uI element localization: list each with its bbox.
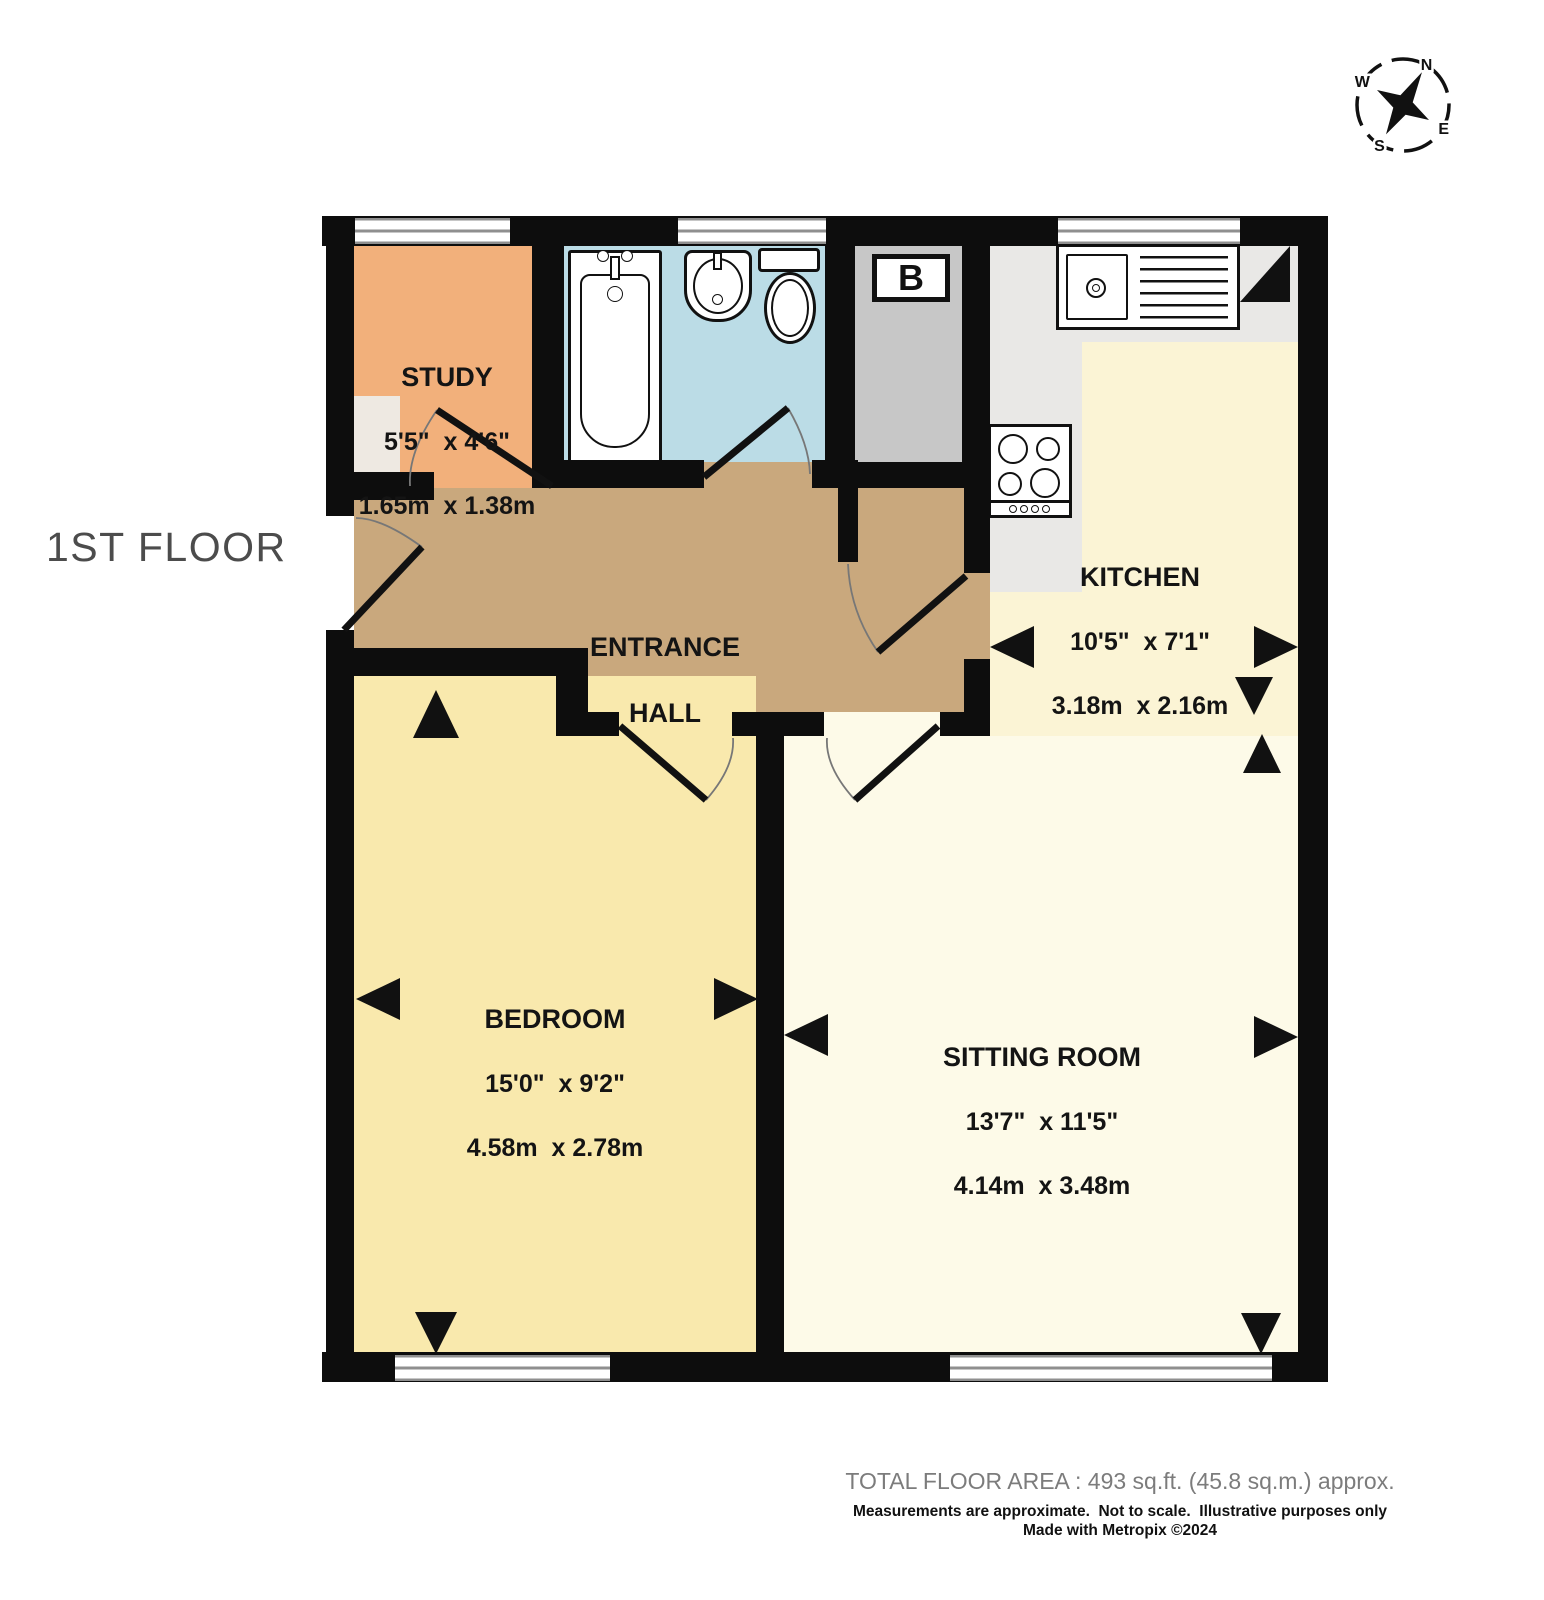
- toilet-cistern: [758, 248, 820, 272]
- boiler-box: B: [872, 254, 950, 302]
- bedroom-arrow-up: [413, 690, 459, 738]
- bedroom-name: BEDROOM: [467, 1004, 644, 1034]
- study-label: STUDY 5'5" x 4'6" 1.65m x 1.38m: [359, 326, 536, 556]
- kitchen-dims-metric: 3.18m x 2.16m: [1052, 692, 1229, 720]
- bathtub-drain: [607, 286, 623, 302]
- hob-burner-tl: [998, 434, 1028, 464]
- entrance-hall-name-line2: HALL: [590, 698, 740, 728]
- sitting-arrow-right: [1254, 1016, 1298, 1058]
- washbasin-tap: [713, 252, 722, 270]
- hob-burner-tr: [1036, 437, 1060, 461]
- sitting-room-label: SITTING ROOM 13'7" x 11'5" 4.14m x 3.48m: [943, 1006, 1141, 1236]
- entrance-hall-name-line1: ENTRANCE: [590, 632, 740, 662]
- kitchen-arrow-up: [1243, 734, 1281, 773]
- kitchen-arrow-right: [1254, 626, 1298, 668]
- bedroom-dims-metric: 4.58m x 2.78m: [467, 1134, 644, 1162]
- hob-burner-br: [1030, 468, 1060, 498]
- bathtub-tap-right: [621, 250, 633, 262]
- wall-hall-kitchen-upper: [964, 488, 990, 573]
- kitchen-dims-imperial: 10'5" x 7'1": [1052, 628, 1229, 656]
- sitting-room-dims-metric: 4.14m x 3.48m: [943, 1172, 1141, 1200]
- wall-hall-spur: [838, 488, 858, 562]
- wall-outer-left-upper: [326, 216, 354, 516]
- window-sitting-room: [950, 1355, 1272, 1381]
- sittingdoor-gap: [824, 712, 940, 736]
- window-bedroom: [395, 1355, 610, 1381]
- sitting-arrow-left: [784, 1014, 828, 1056]
- floorplan-page: B: [0, 0, 1544, 1600]
- compass-n: N: [1421, 57, 1433, 74]
- hall-kitchendoor-gap: [964, 573, 990, 659]
- hob-knob-1: [1009, 505, 1017, 513]
- study-dims-metric: 1.65m x 1.38m: [359, 492, 536, 520]
- hob-burner-bl: [998, 472, 1022, 496]
- toilet-bowl-inner: [771, 279, 809, 337]
- bedroom-label: BEDROOM 15'0" x 9'2" 4.58m x 2.78m: [467, 968, 644, 1198]
- bathtub-spout: [610, 256, 620, 280]
- washbasin-drain: [712, 294, 723, 305]
- wall-bathroom-bottom-left: [532, 460, 704, 488]
- hob: [988, 424, 1072, 518]
- wall-bathroom-boiler: [825, 246, 855, 462]
- bathtub-tap-left: [597, 250, 609, 262]
- bedroom-arrow-right: [714, 978, 758, 1020]
- footer: TOTAL FLOOR AREA : 493 sq.ft. (45.8 sq.m…: [690, 1468, 1544, 1540]
- compass-s: S: [1374, 138, 1385, 155]
- hob-knob-2: [1020, 505, 1028, 513]
- sitting-room-name: SITTING ROOM: [943, 1042, 1141, 1072]
- compass-star: [1377, 72, 1429, 134]
- kitchen-drainer: [1140, 256, 1228, 320]
- hob-panel-line: [990, 500, 1070, 503]
- wall-boiler-kitchen: [962, 246, 990, 488]
- study-name: STUDY: [359, 362, 536, 392]
- sitting-arrow-down: [1241, 1313, 1281, 1354]
- footer-disclaimer: Measurements are approximate. Not to sca…: [690, 1502, 1544, 1521]
- window-study: [355, 218, 510, 244]
- hob-knob-3: [1031, 505, 1039, 513]
- wall-outer-right: [1298, 216, 1328, 1382]
- bedroom-dims-imperial: 15'0" x 9'2": [467, 1070, 644, 1098]
- kitchen-entry-door-triangle: [1240, 246, 1290, 302]
- wall-boiler-bottom: [825, 462, 975, 488]
- footer-credit: Made with Metropix ©2024: [690, 1521, 1544, 1540]
- entrance-hall-label: ENTRANCE HALL: [590, 596, 740, 764]
- kitchen-sink-drain-inner: [1092, 284, 1100, 292]
- compass-rose: N E S W: [1341, 43, 1465, 167]
- sitting-room-dims-imperial: 13'7" x 11'5": [943, 1108, 1141, 1136]
- compass-w: W: [1355, 74, 1371, 91]
- wall-bedroom-sitting: [756, 712, 784, 1352]
- kitchen-arrow-down: [1235, 677, 1273, 715]
- kitchen-name: KITCHEN: [1052, 562, 1229, 592]
- kitchen-label: KITCHEN 10'5" x 7'1" 3.18m x 2.16m: [1052, 526, 1229, 756]
- hall-bathdoor-gap: [704, 462, 812, 488]
- compass-e: E: [1438, 121, 1449, 138]
- bedroom-arrow-down: [415, 1312, 457, 1354]
- kitchen-arrow-left: [990, 626, 1034, 668]
- bedroom-arrow-left: [356, 978, 400, 1020]
- wall-bedroom-top: [354, 648, 562, 676]
- hob-knob-4: [1042, 505, 1050, 513]
- study-dims-imperial: 5'5" x 4'6": [359, 428, 536, 456]
- wall-hall-bottom-right-stub: [940, 712, 990, 736]
- total-floor-area: TOTAL FLOOR AREA : 493 sq.ft. (45.8 sq.m…: [690, 1468, 1544, 1495]
- floor-title: 1ST FLOOR: [46, 524, 287, 571]
- boiler-label: B: [898, 257, 924, 298]
- window-kitchen: [1058, 218, 1240, 244]
- wall-outer-left-lower: [326, 630, 354, 1382]
- window-bathroom: [678, 218, 826, 244]
- wall-study-bathroom: [532, 246, 564, 488]
